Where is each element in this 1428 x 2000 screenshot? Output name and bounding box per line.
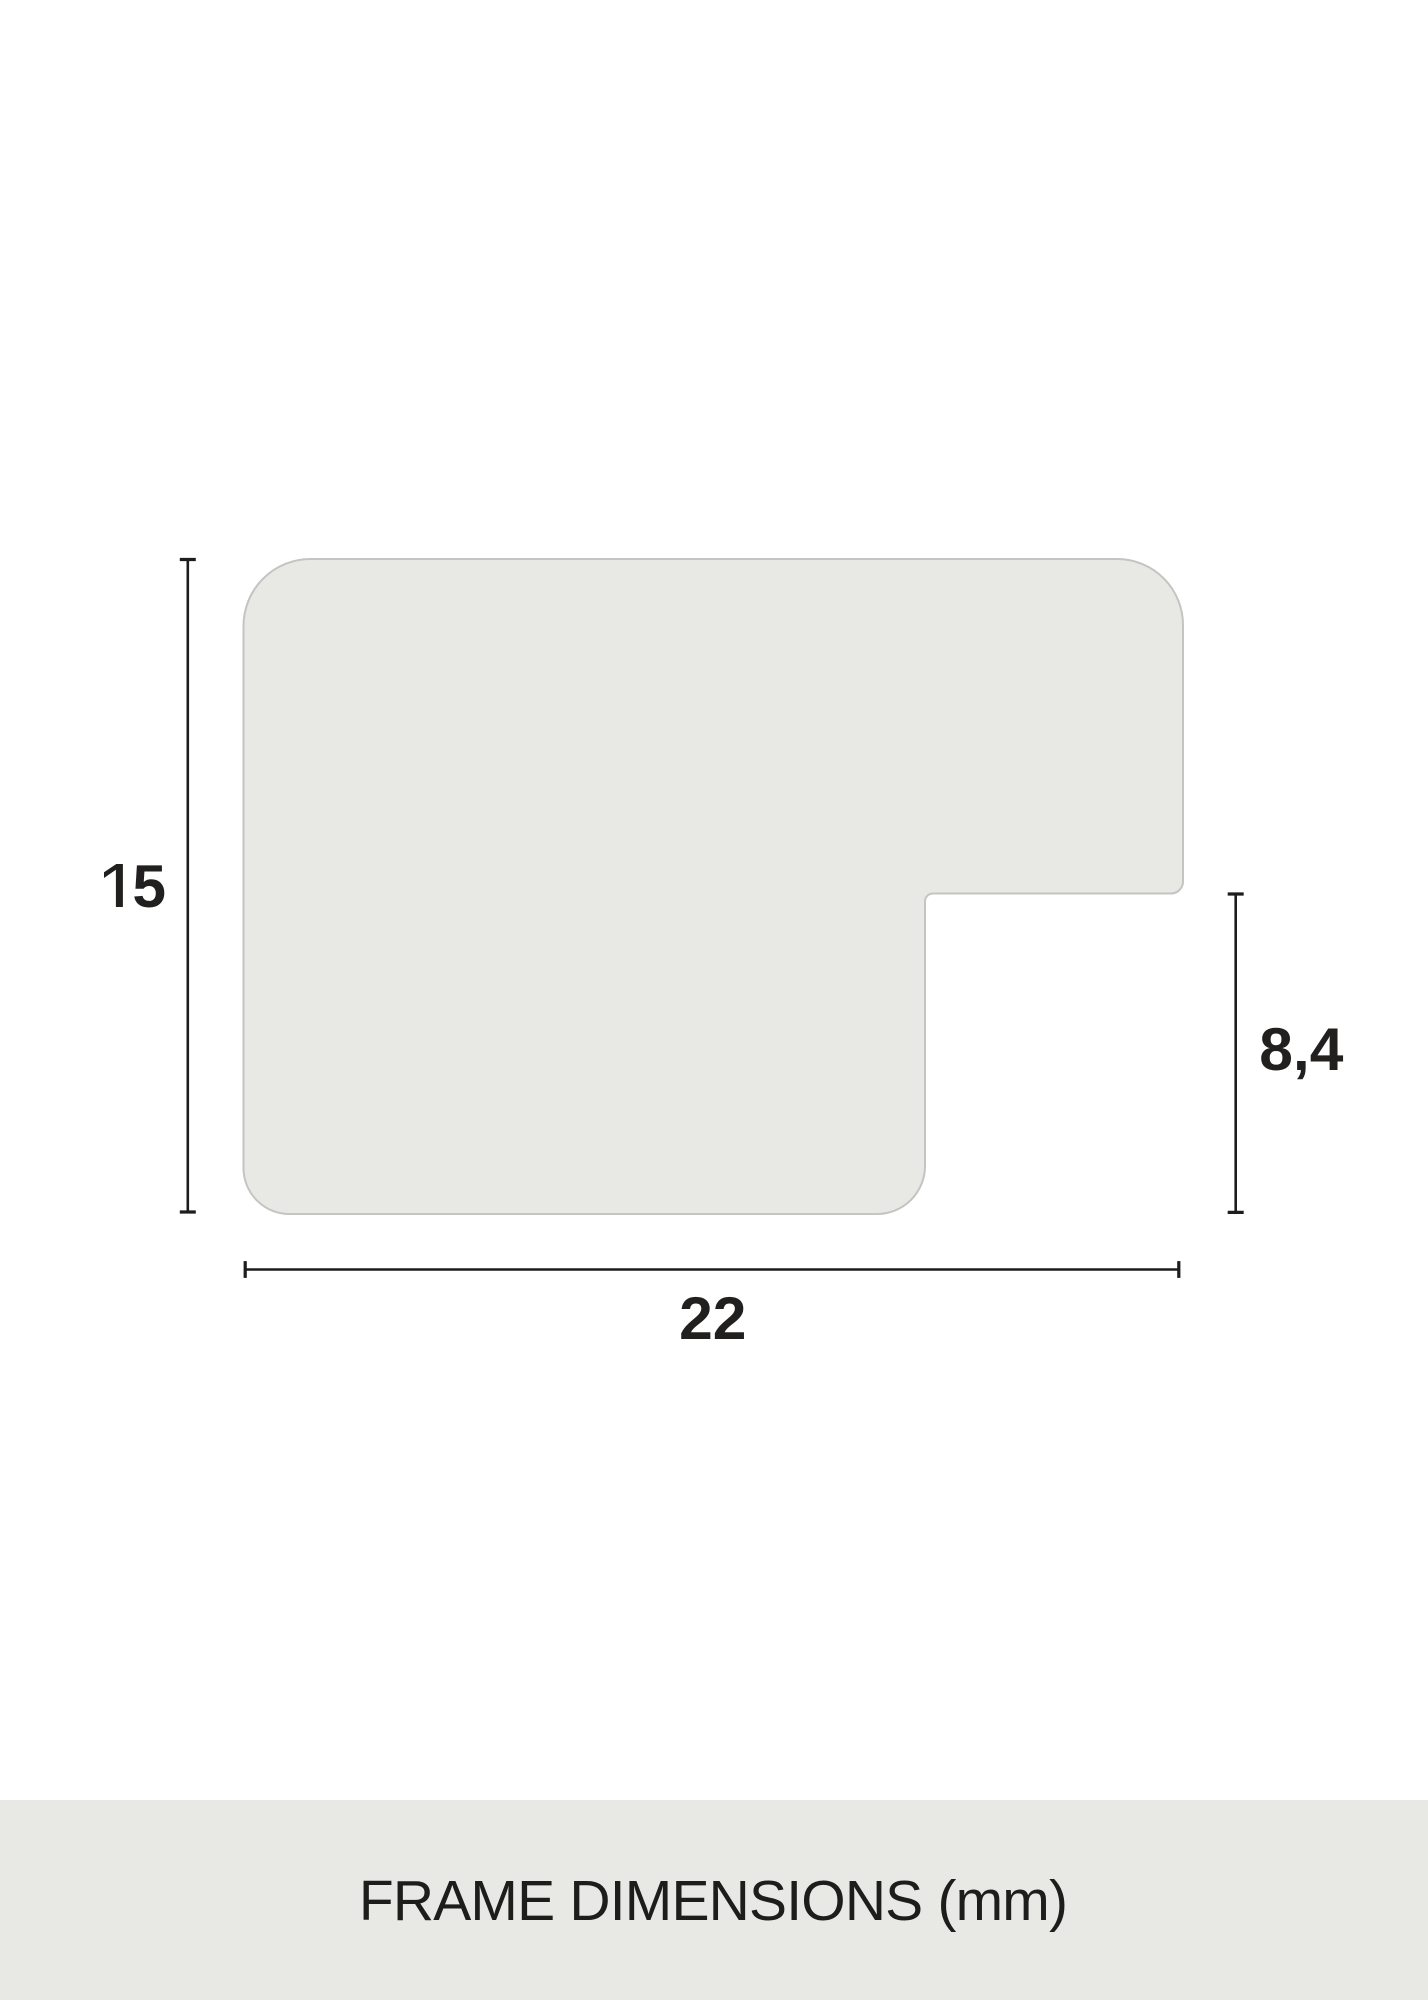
svg-text:22: 22 — [679, 1284, 746, 1352]
svg-text:5: 5 — [132, 852, 166, 920]
svg-text:FRAME DIMENSIONS (mm): FRAME DIMENSIONS (mm) — [359, 1869, 1067, 1933]
svg-text:8,4: 8,4 — [1259, 1015, 1343, 1083]
